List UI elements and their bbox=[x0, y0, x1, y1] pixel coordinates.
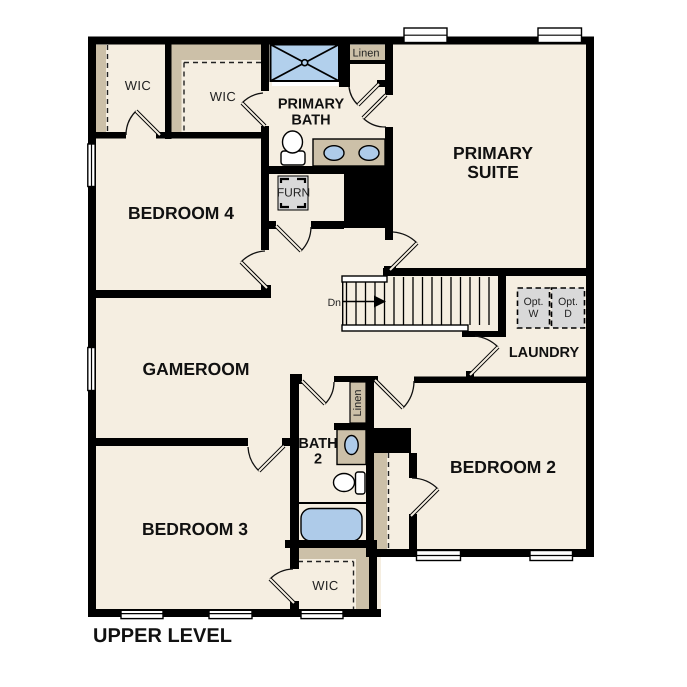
svg-text:WIC: WIC bbox=[210, 89, 236, 104]
svg-text:FURN: FURN bbox=[277, 186, 310, 200]
svg-text:LAUNDRY: LAUNDRY bbox=[509, 345, 580, 361]
svg-text:Opt.: Opt. bbox=[524, 296, 544, 308]
svg-text:SUITE: SUITE bbox=[467, 162, 519, 182]
svg-text:UPPER LEVEL: UPPER LEVEL bbox=[93, 625, 232, 647]
svg-text:GAMEROOM: GAMEROOM bbox=[143, 359, 250, 379]
svg-text:PRIMARY: PRIMARY bbox=[278, 97, 345, 113]
svg-text:BATH: BATH bbox=[291, 113, 330, 129]
svg-text:WIC: WIC bbox=[312, 578, 338, 593]
svg-text:D: D bbox=[564, 308, 572, 320]
svg-text:BEDROOM 4: BEDROOM 4 bbox=[128, 203, 234, 223]
svg-text:Linen: Linen bbox=[352, 390, 364, 417]
svg-text:WIC: WIC bbox=[125, 78, 151, 93]
svg-text:W: W bbox=[529, 308, 539, 320]
svg-text:PRIMARY: PRIMARY bbox=[453, 143, 533, 163]
svg-text:Opt.: Opt. bbox=[558, 296, 578, 308]
svg-text:Linen: Linen bbox=[353, 48, 380, 60]
svg-text:2: 2 bbox=[314, 452, 322, 468]
svg-text:BEDROOM 3: BEDROOM 3 bbox=[142, 519, 248, 539]
svg-text:BEDROOM 2: BEDROOM 2 bbox=[450, 457, 556, 477]
svg-text:BATH: BATH bbox=[298, 436, 337, 452]
svg-text:Dn: Dn bbox=[328, 297, 342, 309]
